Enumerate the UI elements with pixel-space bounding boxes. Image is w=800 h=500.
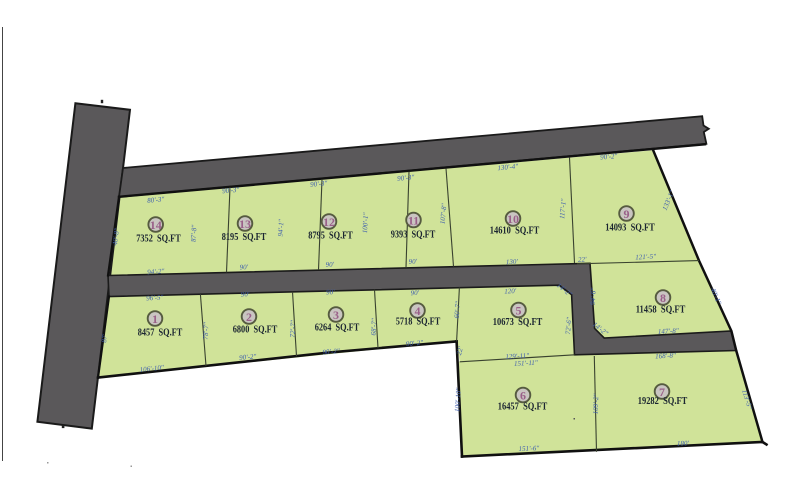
svg-text:90': 90' <box>408 257 417 265</box>
svg-text:10: 10 <box>507 212 519 226</box>
svg-text:5: 5 <box>516 303 522 317</box>
svg-text:1: 1 <box>152 312 158 326</box>
svg-text:6: 6 <box>520 388 526 402</box>
svg-text:78'-7": 78'-7" <box>202 322 211 340</box>
svg-text:100'-1": 100'-1" <box>361 212 370 233</box>
svg-text:8: 8 <box>660 291 666 305</box>
svg-text:72'-7": 72'-7" <box>289 320 298 338</box>
svg-text:14: 14 <box>150 218 162 232</box>
svg-text:90': 90' <box>410 289 419 297</box>
svg-text:2: 2 <box>246 310 252 324</box>
svg-text:90': 90' <box>241 290 250 298</box>
svg-text:11: 11 <box>408 213 419 227</box>
svg-text:109'-2": 109'-2" <box>592 393 601 414</box>
svg-text:87'-8": 87'-8" <box>190 225 199 243</box>
svg-text:100'-10": 100'-10" <box>453 387 463 412</box>
svg-text:8457 SQ.FT: 8457 SQ.FT <box>138 328 183 339</box>
svg-text:147'-8": 147'-8" <box>658 327 679 336</box>
svg-text:6264 SQ.FT: 6264 SQ.FT <box>315 323 360 334</box>
svg-text:90'-2": 90'-2" <box>406 339 424 348</box>
svg-text:151'-11": 151'-11" <box>514 359 538 368</box>
svg-text:22': 22' <box>578 255 587 263</box>
svg-text:90'-3": 90'-3" <box>222 186 240 195</box>
svg-text:90'-2": 90'-2" <box>600 152 618 161</box>
svg-text:130': 130' <box>506 258 519 267</box>
svg-text:8795 SQ.FT: 8795 SQ.FT <box>308 231 353 242</box>
svg-text:90'-2": 90'-2" <box>239 352 257 361</box>
svg-text:94'-2": 94'-2" <box>147 267 165 276</box>
svg-text:90': 90' <box>239 263 248 271</box>
svg-text:96'-5": 96'-5" <box>146 293 164 302</box>
svg-text:168'-8": 168'-8" <box>655 351 676 360</box>
svg-text:16457 SQ.FT: 16457 SQ.FT <box>498 402 548 413</box>
svg-text:60'-7": 60'-7" <box>453 301 462 319</box>
svg-text:5718 SQ.FT: 5718 SQ.FT <box>396 317 441 328</box>
svg-text:3: 3 <box>333 308 339 322</box>
svg-text:13: 13 <box>239 217 251 231</box>
svg-text:7352 SQ.FT: 7352 SQ.FT <box>136 234 181 245</box>
svg-text:9393 SQ.FT: 9393 SQ.FT <box>391 230 436 241</box>
svg-text:11458 SQ.FT: 11458 SQ.FT <box>636 305 686 316</box>
svg-text:94'-1": 94'-1" <box>277 219 286 237</box>
svg-text:90': 90' <box>326 288 335 296</box>
svg-text:8195 SQ.FT: 8195 SQ.FT <box>222 232 267 243</box>
svg-text:180': 180' <box>677 439 690 447</box>
svg-text:19282 SQ.FT: 19282 SQ.FT <box>638 396 688 407</box>
svg-text:94'-6": 94'-6" <box>589 288 598 306</box>
svg-text:120': 120' <box>504 287 517 296</box>
svg-text:90'-2": 90'-2" <box>322 347 340 356</box>
svg-text:10673 SQ.FT: 10673 SQ.FT <box>493 317 543 328</box>
svg-text:9: 9 <box>624 207 630 221</box>
svg-text:14610 SQ.FT: 14610 SQ.FT <box>490 226 540 237</box>
svg-text:90': 90' <box>325 260 334 268</box>
svg-text:12: 12 <box>323 215 335 229</box>
svg-text:80'-3": 80'-3" <box>147 195 165 204</box>
svg-text:14093 SQ.FT: 14093 SQ.FT <box>605 223 655 234</box>
svg-text:6800 SQ.FT: 6800 SQ.FT <box>233 325 278 336</box>
svg-text:68'-7": 68'-7" <box>370 318 379 336</box>
svg-text:87': 87' <box>100 333 109 343</box>
svg-text:121'-5": 121'-5" <box>635 252 656 261</box>
svg-text:72'-6": 72'-6" <box>564 317 573 335</box>
svg-text:151'-6": 151'-6" <box>518 444 539 453</box>
svg-text:90'-3": 90'-3" <box>397 173 415 182</box>
svg-text:90'-3": 90'-3" <box>310 179 328 188</box>
